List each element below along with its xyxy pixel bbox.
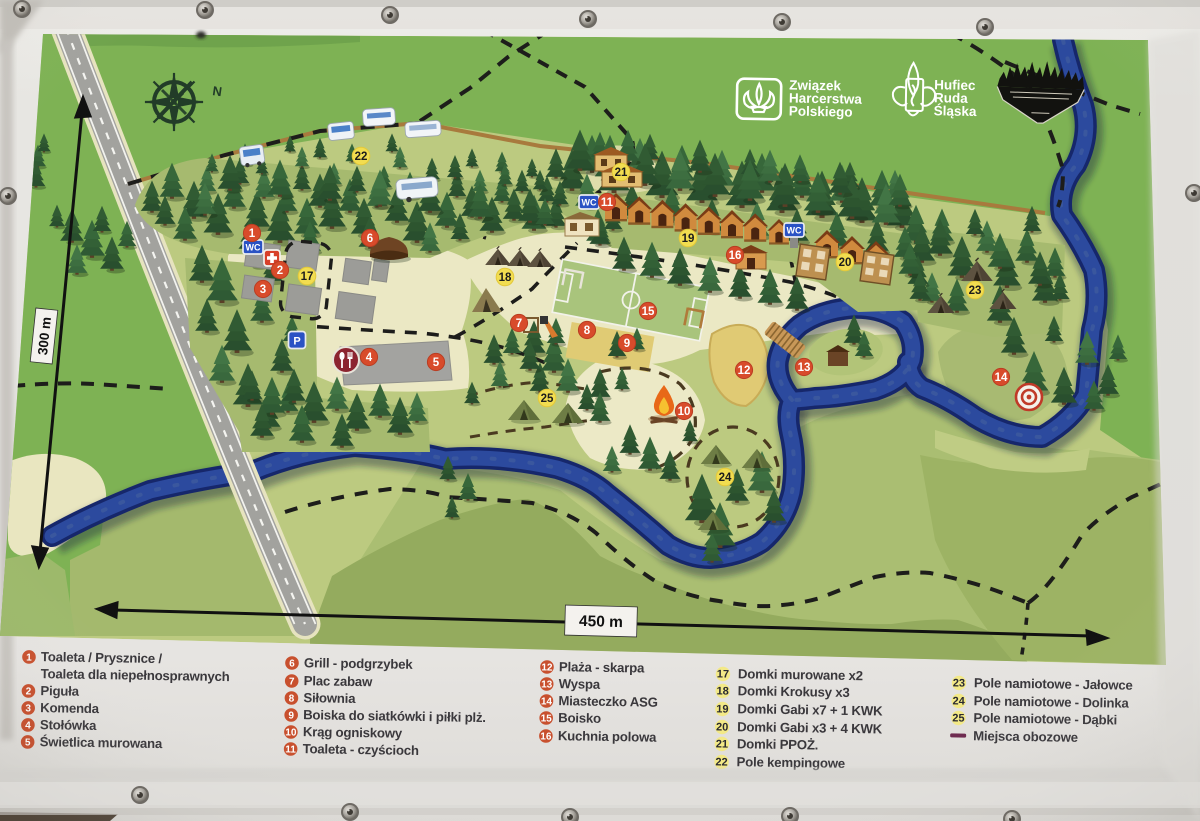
svg-text:2: 2 [277,265,283,277]
svg-text:17: 17 [717,668,729,680]
svg-text:17: 17 [301,271,314,283]
svg-text:25: 25 [541,393,554,405]
svg-text:Domki Gabi x3 + 4 KWK: Domki Gabi x3 + 4 KWK [737,719,883,736]
svg-text:7: 7 [516,318,522,330]
svg-text:Komenda: Komenda [40,700,100,716]
svg-text:23: 23 [953,677,965,689]
svg-text:14: 14 [995,372,1008,384]
svg-text:10: 10 [678,406,691,418]
svg-text:4: 4 [366,352,373,364]
svg-text:21: 21 [716,738,728,750]
svg-text:5: 5 [433,357,440,369]
svg-text:Śląska: Śląska [934,103,978,119]
svg-text:19: 19 [682,233,695,245]
svg-text:6: 6 [367,233,373,245]
svg-text:Plac zabaw: Plac zabaw [304,673,374,689]
svg-text:16: 16 [729,250,742,262]
svg-text:Toaleta / Prysznice /: Toaleta / Prysznice / [41,649,163,666]
svg-text:13: 13 [798,362,811,374]
svg-text:WC: WC [787,226,802,236]
svg-text:12: 12 [738,365,751,377]
svg-text:Pole namiotowe - Dąbki: Pole namiotowe - Dąbki [973,710,1117,727]
svg-text:Piguła: Piguła [40,683,79,699]
svg-text:22: 22 [715,756,727,768]
svg-text:Pole namiotowe - Jałowce: Pole namiotowe - Jałowce [974,675,1133,692]
svg-text:18: 18 [716,685,728,697]
svg-text:2: 2 [26,686,32,697]
svg-text:10: 10 [285,727,297,738]
svg-text:15: 15 [541,713,553,724]
svg-text:3: 3 [260,284,266,296]
svg-text:11: 11 [601,197,614,209]
svg-text:4: 4 [25,720,31,731]
svg-text:Krąg ogniskowy: Krąg ogniskowy [303,724,403,741]
svg-text:20: 20 [716,721,728,733]
svg-text:Domki PPOŻ.: Domki PPOŻ. [737,736,819,752]
svg-text:20: 20 [839,257,852,269]
svg-text:Siłownia: Siłownia [303,690,356,706]
svg-text:11: 11 [285,744,296,755]
svg-text:5: 5 [25,737,31,748]
svg-text:Domki murowane x2: Domki murowane x2 [738,666,863,683]
svg-text:Grill - podgrzybek: Grill - podgrzybek [304,655,414,672]
svg-text:24: 24 [719,472,732,484]
svg-text:Plaża - skarpa: Plaża - skarpa [559,659,645,675]
svg-text:Domki Gabi x7 + 1 KWK: Domki Gabi x7 + 1 KWK [737,701,883,718]
svg-text:WC: WC [246,243,261,253]
svg-text:18: 18 [499,272,512,284]
svg-text:1: 1 [26,652,32,663]
svg-text:Stołówka: Stołówka [40,717,97,733]
svg-text:Toaleta dla niepełnosprawnych: Toaleta dla niepełnosprawnych [41,666,230,684]
svg-text:12: 12 [541,662,553,673]
svg-text:1: 1 [249,228,256,240]
svg-text:21: 21 [615,167,628,179]
svg-text:P: P [293,336,300,348]
svg-text:Domki Krokusy x3: Domki Krokusy x3 [738,683,850,700]
svg-text:Polskiego: Polskiego [789,104,853,120]
svg-text:25: 25 [952,712,964,724]
svg-text:Toaleta - czyścioch: Toaleta - czyścioch [303,741,420,758]
svg-text:6: 6 [289,658,295,669]
svg-text:7: 7 [289,676,295,687]
svg-text:WC: WC [582,198,597,208]
svg-text:Pole namiotowe - Dolinka: Pole namiotowe - Dolinka [974,693,1130,710]
svg-text:Boiska do siatkówki i piłki pl: Boiska do siatkówki i piłki plż. [303,707,486,725]
svg-text:Świetlica murowana: Świetlica murowana [40,734,164,751]
svg-text:16: 16 [540,731,552,742]
svg-text:9: 9 [288,710,294,721]
svg-text:Kuchnia polowa: Kuchnia polowa [558,728,657,745]
svg-text:9: 9 [624,338,630,350]
svg-text:Wyspa: Wyspa [559,676,601,692]
svg-text:8: 8 [289,693,295,704]
svg-text:3: 3 [25,703,31,714]
svg-text:Miasteczko ASG: Miasteczko ASG [558,693,658,710]
svg-text:Boisko: Boisko [558,710,601,726]
svg-text:19: 19 [716,703,728,715]
svg-text:14: 14 [541,696,553,707]
svg-text:23: 23 [969,285,982,297]
svg-text:22: 22 [355,151,368,163]
svg-text:8: 8 [584,325,591,337]
svg-text:Miejsca obozowe: Miejsca obozowe [973,728,1078,745]
svg-text:13: 13 [541,679,553,690]
svg-text:24: 24 [952,695,965,707]
svg-text:450 m: 450 m [579,613,623,631]
svg-text:15: 15 [642,306,655,318]
